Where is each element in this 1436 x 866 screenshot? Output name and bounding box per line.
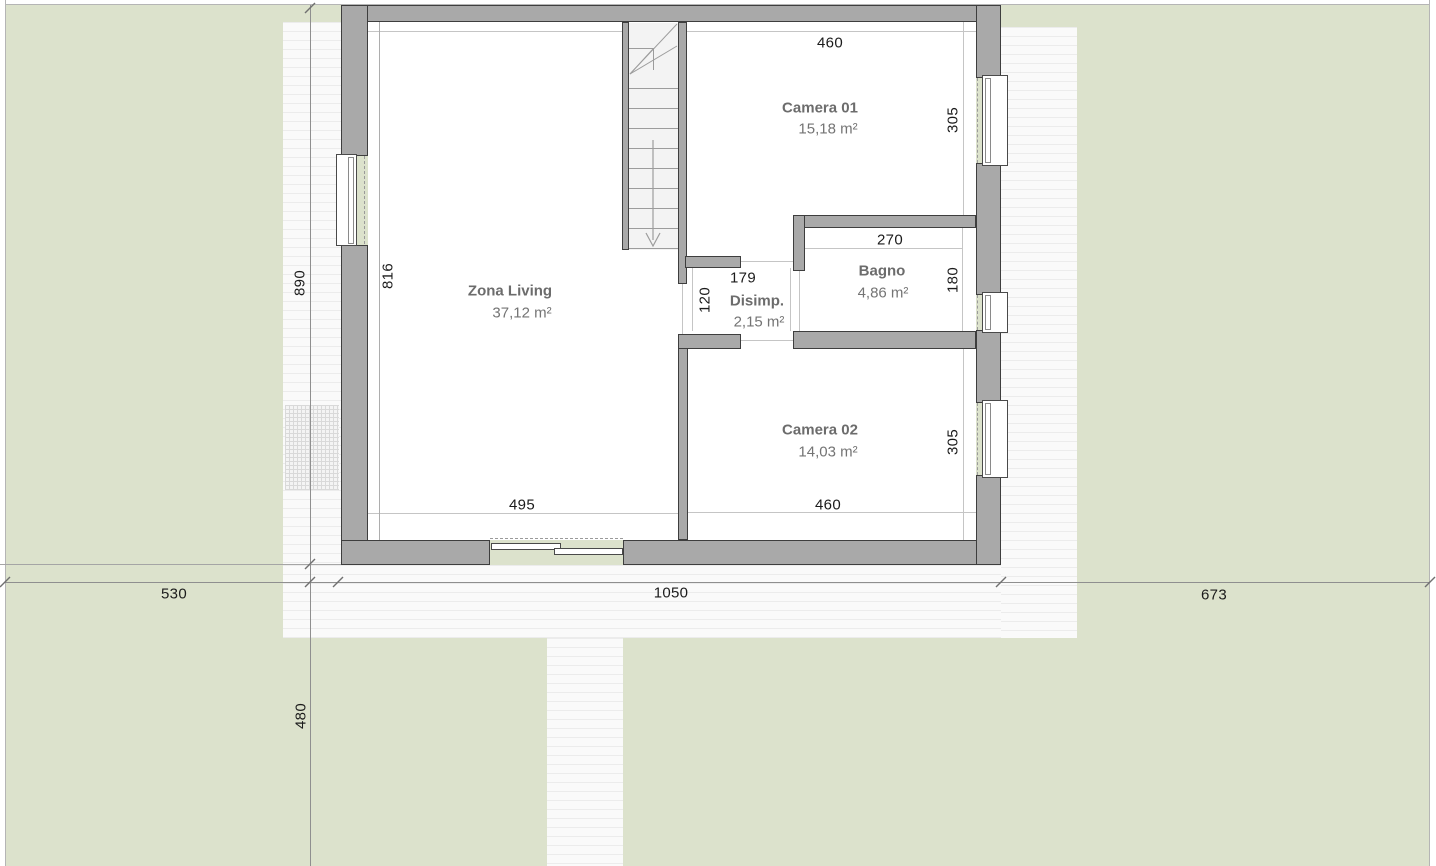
wall-stair-right bbox=[678, 22, 687, 284]
dim-camera02-depth: 305 bbox=[945, 429, 962, 455]
wall-disimp-bagno-divider bbox=[793, 215, 805, 271]
terrace-right-strip bbox=[1001, 27, 1077, 638]
dim-disimp-width: 179 bbox=[730, 270, 756, 287]
wall-exterior-bottom-left bbox=[341, 540, 490, 565]
dim-site-house-width: 1050 bbox=[654, 585, 689, 602]
door-disimp-camera02 bbox=[741, 340, 793, 341]
stair-landing-edge-v bbox=[653, 48, 654, 70]
horizontal-dimension-line bbox=[5, 582, 1430, 583]
dim-living-depth: 816 bbox=[380, 263, 397, 289]
window-bagno-frame bbox=[985, 295, 991, 330]
door-disimp-bagno bbox=[799, 271, 800, 331]
dim-camera02-width: 460 bbox=[815, 497, 841, 514]
living-top-line bbox=[368, 31, 622, 32]
stair-landing-edge-h bbox=[629, 48, 653, 49]
wall-exterior-right-3 bbox=[976, 330, 1001, 403]
bagno-right-line bbox=[962, 228, 963, 331]
room-area-bagno: 4,86 m² bbox=[858, 285, 909, 302]
dim-disimp-depth: 120 bbox=[697, 287, 714, 313]
floor-plan-canvas: Zona Living 37,12 m² Camera 01 15,18 m² … bbox=[0, 0, 1436, 866]
room-area-disimp: 2,15 m² bbox=[734, 314, 785, 331]
garden-path bbox=[547, 638, 623, 866]
camera01-right-line bbox=[963, 22, 964, 215]
terrace-left-strip bbox=[283, 22, 341, 638]
room-label-zona-living: Zona Living bbox=[468, 283, 552, 300]
sliding-door-panel-2 bbox=[554, 548, 623, 555]
room-label-camera-01: Camera 01 bbox=[782, 100, 858, 117]
dim-bagno-width: 270 bbox=[877, 232, 903, 249]
room-area-camera-01: 15,18 m² bbox=[798, 121, 857, 138]
dim-living-width: 495 bbox=[509, 497, 535, 514]
window-camera01-dashed-line bbox=[977, 78, 978, 163]
room-area-zona-living: 37,12 m² bbox=[492, 305, 551, 322]
disimp-left-line bbox=[692, 268, 693, 331]
window-camera02-frame bbox=[985, 403, 991, 475]
extension-line-house-bottom bbox=[0, 564, 341, 565]
room-label-disimp: Disimp. bbox=[730, 293, 784, 310]
room-label-bagno: Bagno bbox=[859, 263, 906, 280]
room-label-camera-02: Camera 02 bbox=[782, 422, 858, 439]
wall-exterior-left-lower bbox=[341, 245, 368, 565]
wall-exterior-bottom-right bbox=[623, 540, 1001, 565]
wall-exterior-right-4 bbox=[976, 475, 1001, 565]
window-left-frame bbox=[348, 157, 354, 244]
dim-site-below: 480 bbox=[293, 703, 310, 729]
wall-stair-left bbox=[622, 22, 629, 250]
disimp-right-line bbox=[790, 268, 791, 331]
left-margin bbox=[0, 0, 6, 866]
dim-camera01-width: 460 bbox=[817, 35, 843, 52]
camera01-top-line bbox=[686, 31, 976, 32]
vertical-dimension-line bbox=[310, 5, 311, 866]
dim-camera01-depth: 305 bbox=[945, 107, 962, 133]
dim-bagno-depth: 180 bbox=[945, 267, 962, 293]
wall-exterior-right-1 bbox=[976, 5, 1001, 78]
room-area-camera-02: 14,03 m² bbox=[798, 444, 857, 461]
dim-site-right: 673 bbox=[1201, 587, 1227, 604]
window-camera02-dashed-line bbox=[977, 403, 978, 475]
sliding-door-dashed-line bbox=[490, 538, 623, 539]
dim-house-height: 890 bbox=[292, 270, 309, 296]
door-disimp-camera01 bbox=[741, 261, 793, 262]
doormat-grate bbox=[285, 405, 339, 490]
camera02-right-line bbox=[963, 349, 964, 540]
wall-disimp-top bbox=[685, 256, 741, 268]
wall-exterior-top bbox=[341, 5, 1001, 22]
wall-bagno-bottom bbox=[793, 331, 976, 349]
wall-camera02-top-left bbox=[678, 334, 741, 349]
terrace-bottom-band bbox=[283, 565, 1077, 638]
stair-treads bbox=[629, 88, 678, 249]
wall-living-camera02 bbox=[678, 334, 688, 540]
window-bagno-dashed-line bbox=[977, 295, 978, 330]
window-left-dashed-line bbox=[364, 156, 365, 244]
sliding-door-panel-1 bbox=[491, 543, 561, 550]
window-camera01-frame bbox=[985, 78, 991, 163]
wall-exterior-left-upper bbox=[341, 5, 368, 156]
wall-camera01-bottom bbox=[793, 215, 976, 228]
door-living-disimp bbox=[682, 284, 683, 334]
dim-site-left: 530 bbox=[161, 586, 187, 603]
right-margin bbox=[1429, 0, 1436, 866]
wall-exterior-right-2 bbox=[976, 163, 1001, 295]
